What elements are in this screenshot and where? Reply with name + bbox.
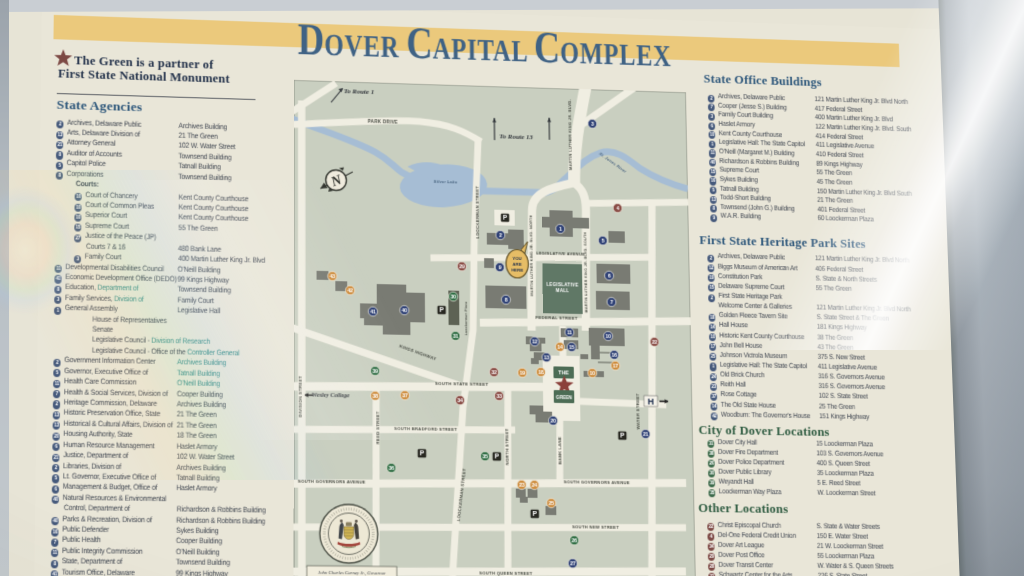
svg-text:36: 36 [389, 465, 395, 471]
svg-text:21: 21 [643, 431, 649, 437]
svg-text:34: 34 [457, 398, 463, 404]
svg-text:1: 1 [559, 226, 562, 232]
svg-text:7: 7 [610, 299, 613, 305]
svg-text:17: 17 [613, 363, 619, 369]
svg-text:YOU: YOU [512, 255, 521, 260]
svg-text:To Route 1: To Route 1 [344, 88, 374, 96]
svg-text:6: 6 [608, 273, 611, 279]
svg-text:25: 25 [549, 500, 555, 506]
svg-text:HERE: HERE [511, 267, 523, 272]
svg-text:37: 37 [402, 393, 408, 399]
svg-text:SOUTH QUEEN STREET: SOUTH QUEEN STREET [479, 570, 532, 576]
svg-text:14: 14 [557, 344, 563, 350]
svg-text:8: 8 [505, 297, 508, 303]
svg-text:11: 11 [567, 330, 572, 336]
svg-text:43: 43 [330, 273, 336, 279]
svg-text:9: 9 [498, 265, 501, 271]
svg-text:P: P [503, 215, 508, 222]
svg-text:Loockerman Plaza: Loockerman Plaza [464, 301, 468, 335]
svg-text:Silver Lake: Silver Lake [434, 178, 458, 184]
svg-text:John Charles Carney Jr., Gover: John Charles Carney Jr., Governor [318, 570, 386, 576]
svg-text:40: 40 [402, 308, 408, 314]
svg-text:15: 15 [569, 344, 575, 350]
svg-text:23: 23 [519, 482, 525, 488]
svg-text:12: 12 [532, 339, 538, 345]
svg-text:ARE: ARE [513, 261, 522, 266]
svg-text:REED STREET: REED STREET [375, 410, 380, 443]
svg-text:26: 26 [572, 538, 578, 544]
svg-text:FEDERAL STREET: FEDERAL STREET [536, 314, 578, 320]
svg-text:P: P [532, 511, 537, 518]
svg-text:13: 13 [544, 355, 550, 361]
svg-text:24: 24 [532, 482, 538, 488]
svg-text:20: 20 [550, 418, 556, 424]
svg-text:29: 29 [459, 264, 465, 270]
svg-text:Wesley College: Wesley College [312, 392, 350, 399]
svg-text:SOUTH STATE STREET: SOUTH STATE STREET [435, 380, 488, 386]
svg-text:P: P [495, 453, 500, 460]
svg-text:GREEN: GREEN [556, 394, 572, 399]
svg-text:33: 33 [496, 393, 502, 399]
svg-text:H: H [648, 396, 654, 406]
svg-text:BANK LANE: BANK LANE [557, 436, 562, 464]
svg-text:31: 31 [453, 333, 459, 339]
svg-text:30: 30 [451, 294, 457, 300]
svg-text:SOUTH GOVERNORS AVENUE: SOUTH GOVERNORS AVENUE [298, 478, 366, 484]
svg-text:LEGISLATIVE: LEGISLATIVE [546, 281, 578, 287]
svg-text:DIVISION STREET: DIVISION STREET [298, 375, 303, 417]
svg-text:To Route 13: To Route 13 [499, 133, 533, 141]
svg-text:4: 4 [616, 205, 619, 211]
svg-text:MARTIN LUTHER KING JR. BLVD.: MARTIN LUTHER KING JR. BLVD. [567, 99, 573, 170]
svg-text:2: 2 [499, 232, 502, 238]
svg-text:10: 10 [606, 333, 612, 339]
svg-text:19: 19 [520, 370, 526, 376]
svg-text:LOOCKERMAN STREET: LOOCKERMAN STREET [475, 185, 480, 238]
svg-text:22: 22 [652, 339, 658, 345]
svg-text:18: 18 [538, 369, 544, 375]
svg-text:35: 35 [482, 454, 488, 460]
svg-text:32: 32 [491, 369, 497, 375]
svg-text:27: 27 [570, 561, 576, 567]
svg-text:39: 39 [372, 368, 378, 374]
svg-text:41: 41 [370, 309, 376, 315]
svg-text:P: P [620, 432, 625, 439]
svg-text:38: 38 [373, 393, 379, 399]
svg-text:P: P [439, 307, 444, 314]
svg-text:PARK DRIVE: PARK DRIVE [368, 118, 398, 124]
svg-text:3: 3 [591, 121, 594, 127]
svg-text:10: 10 [590, 370, 596, 376]
svg-text:16: 16 [612, 352, 618, 358]
svg-text:SOUTH GOVERNORS AVENUE: SOUTH GOVERNORS AVENUE [564, 479, 630, 485]
svg-text:NORTH STREET: NORTH STREET [504, 428, 509, 465]
svg-text:THE: THE [558, 370, 569, 376]
svg-text:P: P [420, 450, 425, 457]
svg-text:SOUTH BRADFORD STREET: SOUTH BRADFORD STREET [394, 425, 457, 431]
svg-text:SOUTH NEW STREET: SOUTH NEW STREET [572, 524, 619, 530]
svg-text:WATER STREET: WATER STREET [635, 392, 641, 428]
svg-text:MALL: MALL [556, 288, 570, 293]
svg-text:5: 5 [601, 238, 604, 244]
svg-text:42: 42 [347, 288, 353, 294]
